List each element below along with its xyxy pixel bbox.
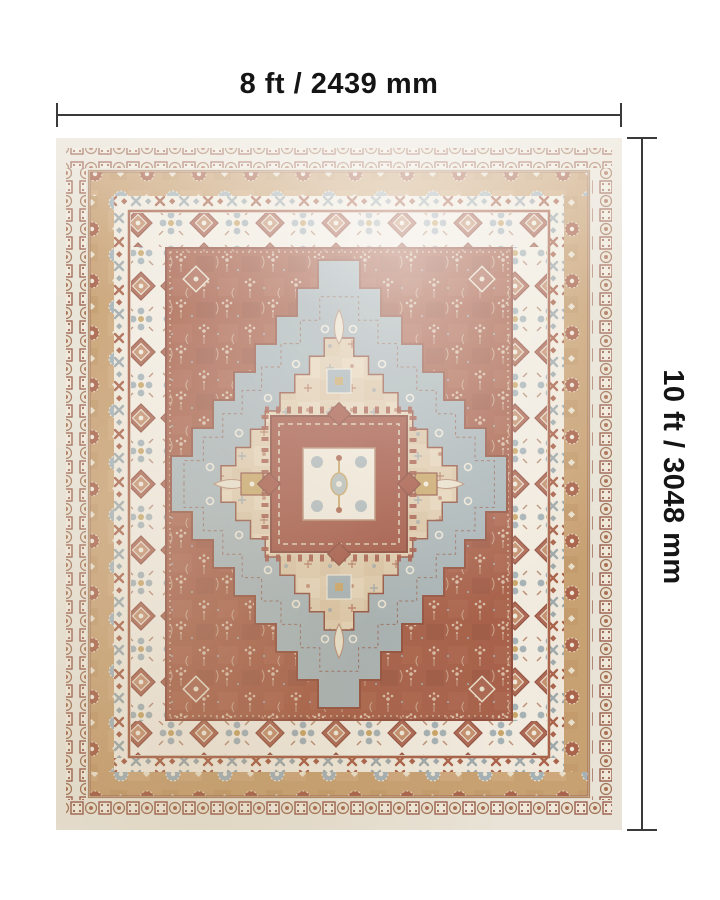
vintage-wash-overlay [56, 138, 622, 830]
height-dimension-line [641, 137, 643, 831]
height-dimension-label: 10 ft / 3048 mm [656, 369, 689, 584]
height-line-top-tick [627, 137, 657, 139]
rug-graphic [56, 138, 622, 830]
width-dimension-line [56, 114, 622, 116]
rug-image [56, 138, 622, 830]
width-line-right-tick [620, 103, 622, 127]
product-dimension-diagram: 8 ft / 2439 mm 10 ft / 3048 mm [0, 0, 720, 900]
height-line-bottom-tick [627, 829, 657, 831]
width-dimension-label: 8 ft / 2439 mm [56, 68, 622, 101]
width-line-left-tick [56, 103, 58, 127]
